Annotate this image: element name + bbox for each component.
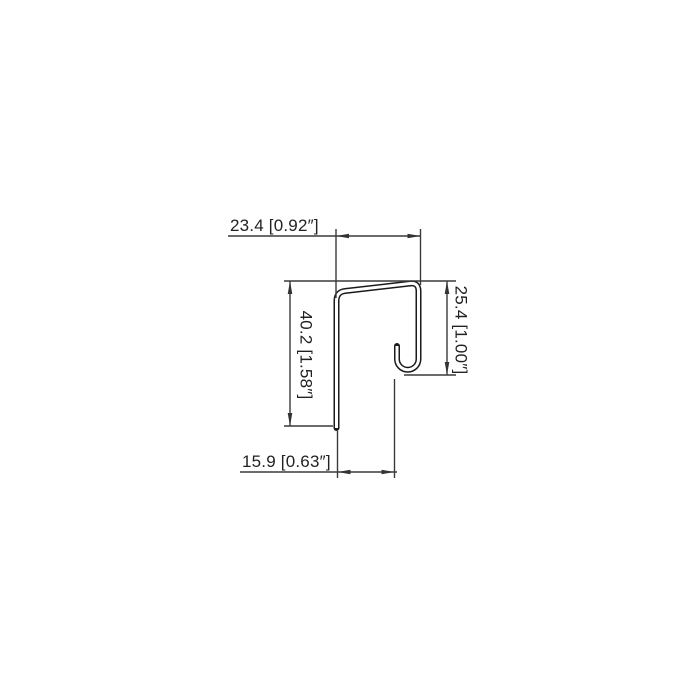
arrow-left-icon (338, 470, 351, 475)
dim-right-label: 25.4 [1.00″] (452, 286, 471, 375)
dimension-left-height: 40.2 [1.58″] (284, 281, 456, 426)
arrow-up-icon (445, 281, 450, 294)
profile-dimension-drawing: 23.4 [0.92″] 40.2 [1.58″] 25.4 [1.00″] (0, 0, 700, 700)
arrow-down-icon (288, 413, 293, 426)
arrow-up-icon (288, 281, 293, 294)
dimension-bottom-width: 15.9 [0.63″] (240, 379, 397, 478)
dim-bottom-label: 15.9 [0.63″] (242, 452, 331, 471)
arrow-right-icon (382, 470, 395, 475)
arrow-right-icon (408, 234, 421, 239)
dim-top-label: 23.4 [0.92″] (230, 216, 319, 235)
profile-outline-core (337, 283, 419, 428)
profile-outline-stroke (337, 283, 419, 428)
arrow-left-icon (336, 234, 349, 239)
arrow-down-icon (445, 362, 450, 375)
drawing-canvas: 23.4 [0.92″] 40.2 [1.58″] 25.4 [1.00″] (0, 0, 700, 700)
dimension-right-height: 25.4 [1.00″] (404, 281, 471, 375)
dim-left-label: 40.2 [1.58″] (297, 311, 316, 400)
profile-outline (337, 283, 419, 428)
